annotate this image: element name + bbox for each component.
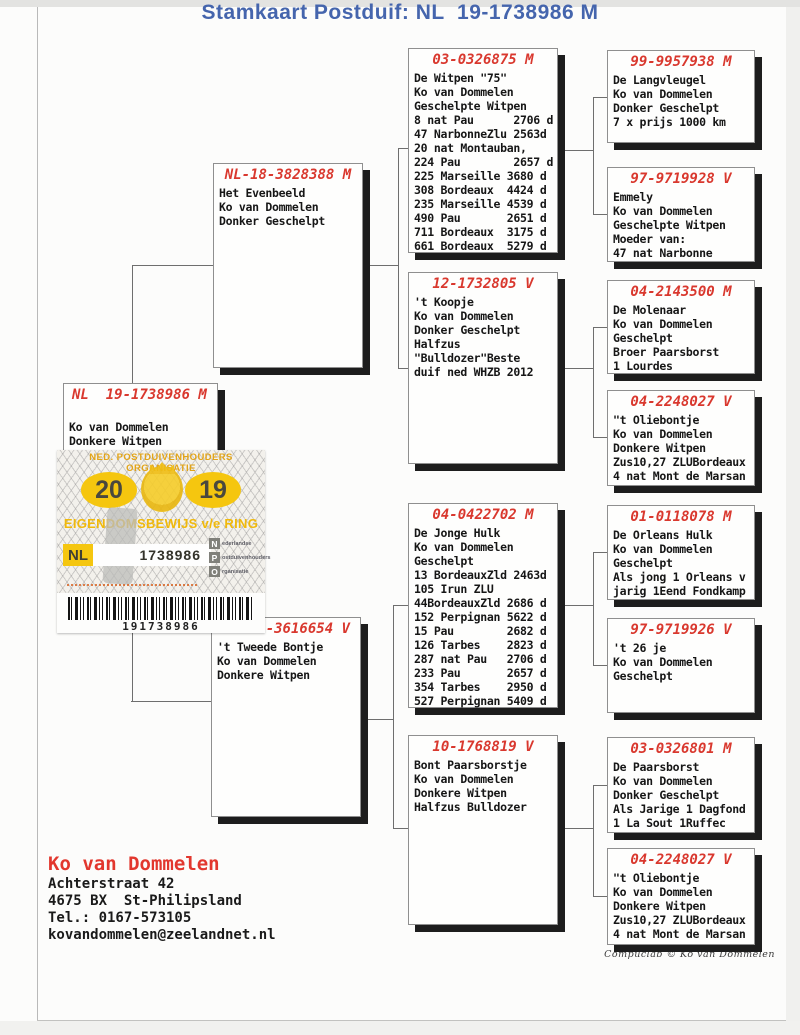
pedigree-box-grandparent: 03-0326875 M De Witpen "75" Ko van Domme… xyxy=(408,48,558,253)
barcode xyxy=(68,597,254,620)
pedigree-box-great-grandparent: 01-0118078 M De Orleans Hulk Ko van Domm… xyxy=(607,505,755,600)
npo-row: O rganisatie xyxy=(209,566,263,577)
sticker-year-right: 19 xyxy=(185,472,241,508)
country-code: NL xyxy=(63,544,93,566)
npo-letter-n: N xyxy=(209,538,220,549)
connector-line xyxy=(361,719,393,720)
sticker-fine-print-line xyxy=(67,584,197,586)
ring-number: 12-1732805 V xyxy=(409,273,557,293)
box-body: Bont Paarsborstje Ko van Dommelen Donker… xyxy=(409,756,557,814)
ring-number: NL 19-1738986 M xyxy=(64,384,217,404)
pedigree-box-great-grandparent: 97-9719926 V 't 26 je Ko van Dommelen Ge… xyxy=(607,618,755,713)
npo-row: N ederlandse xyxy=(209,538,263,549)
connector-line xyxy=(565,828,593,829)
scan-left-edge-line xyxy=(37,7,38,1020)
ring-number: 97-9719928 V xyxy=(608,168,754,188)
ring-number: 04-2143500 M xyxy=(608,281,754,301)
box-body: De Langvleugel Ko van Dommelen Donker Ge… xyxy=(608,71,754,129)
connector-line xyxy=(131,701,211,702)
connector-line xyxy=(565,368,593,369)
owner-name: Ko van Dommelen xyxy=(48,852,276,876)
npo-row: P ostduivenhouders xyxy=(209,552,263,563)
npo-letter-p: P xyxy=(209,552,220,563)
pedigree-box-great-grandparent: 04-2248027 V "t Oliebontje Ko van Dommel… xyxy=(607,848,755,945)
connector-line xyxy=(393,605,408,606)
barcode-number: 191738986 xyxy=(57,620,265,633)
connector-line xyxy=(593,665,607,666)
connector-line xyxy=(133,265,213,266)
connector-line xyxy=(593,896,607,897)
connector-line xyxy=(565,150,593,151)
connector-line xyxy=(393,828,408,829)
npo-word: rganisatie xyxy=(222,569,248,575)
ring-number: 04-2248027 V xyxy=(608,391,754,411)
pedigree-box-great-grandparent: 04-2143500 M De Molenaar Ko van Dommelen… xyxy=(607,280,755,374)
connector-line xyxy=(593,785,607,786)
scan-bottom-margin xyxy=(0,1021,800,1035)
connector-line xyxy=(593,97,607,98)
box-body: De Jonge Hulk Ko van Dommelen Geschelpt … xyxy=(409,524,557,708)
connector-line xyxy=(565,605,593,606)
ring-number: 04-0422702 M xyxy=(409,504,557,524)
ring-number: 03-0326875 M xyxy=(409,49,557,69)
connector-line xyxy=(593,327,607,328)
ring-number: 04-2248027 V xyxy=(608,849,754,869)
npo-acronym-block: N ederlandse P ostduivenhouders O rganis… xyxy=(209,538,263,580)
connector-line xyxy=(593,327,594,437)
page-title: Stamkaart Postduif: NL 19-1738986 M xyxy=(0,1,800,25)
sticker-year-left: 20 xyxy=(81,472,137,508)
connector-line xyxy=(398,148,399,368)
ring-number: 10-1768819 V xyxy=(409,736,557,756)
connector-line xyxy=(593,97,594,214)
connector-line xyxy=(398,148,408,149)
box-body: Ko van Dommelen Donkere Witpen xyxy=(64,404,217,448)
pedigree-box-father: NL-18-3828388 M Het Evenbeeld Ko van Dom… xyxy=(213,163,363,368)
connector-line xyxy=(593,552,594,665)
box-body: 't Koopje Ko van Dommelen Donker Geschel… xyxy=(409,293,557,379)
pedigree-box-mother: -3616654 V 't Tweede Bontje Ko van Domme… xyxy=(211,617,361,817)
box-body: De Paarsborst Ko van Dommelen Donker Ges… xyxy=(608,758,754,830)
npo-word: ostduivenhouders xyxy=(222,555,270,561)
scan-right-margin xyxy=(786,7,800,1021)
box-body: Emmely Ko van Dommelen Geschelpte Witpen… xyxy=(608,188,754,260)
box-body: 't Tweede Bontje Ko van Dommelen Donkere… xyxy=(212,638,360,682)
box-body: 't 26 je Ko van Dommelen Geschelpt xyxy=(608,639,754,683)
pedigree-box-great-grandparent: 03-0326801 M De Paarsborst Ko van Dommel… xyxy=(607,737,755,833)
owner-address: Achterstraat 42 4675 BX St-Philipsland T… xyxy=(48,876,276,944)
barcode-strip: 191738986 xyxy=(57,593,265,633)
ring-number-field: 1738986 xyxy=(93,544,211,566)
ring-number: 99-9957938 M xyxy=(608,51,754,71)
box-body: Het Evenbeeld Ko van Dommelen Donker Ges… xyxy=(214,184,362,228)
ring-number: 01-0118078 M xyxy=(608,506,754,526)
connector-line xyxy=(593,437,607,438)
pedigree-box-great-grandparent: 99-9957938 M De Langvleugel Ko van Domme… xyxy=(607,50,755,143)
ring-id-row: NL 1738986 xyxy=(63,544,213,566)
owner-block: Ko van Dommelen Achterstraat 42 4675 BX … xyxy=(48,852,276,944)
ownership-sticker: NED. POSTDUIVENHOUDERS ORGANISATIE 20 19… xyxy=(57,450,265,633)
box-body: De Orleans Hulk Ko van Dommelen Geschelp… xyxy=(608,526,754,598)
connector-line xyxy=(593,552,607,553)
pedigree-box-great-grandparent: 04-2248027 V "t Oliebontje Ko van Dommel… xyxy=(607,390,755,486)
ring-number: 03-0326801 M xyxy=(608,738,754,758)
connector-line xyxy=(593,785,594,896)
connector-line xyxy=(363,265,398,266)
sticker-mesh-background: NED. POSTDUIVENHOUDERS ORGANISATIE 20 19… xyxy=(57,450,265,593)
npo-letter-o: O xyxy=(209,566,220,577)
box-body: "t Oliebontje Ko van Dommelen Donkere Wi… xyxy=(608,869,754,941)
pedigree-box-grandparent: 12-1732805 V 't Koopje Ko van Dommelen D… xyxy=(408,272,558,464)
pedigree-box-grandparent: 04-0422702 M De Jonge Hulk Ko van Dommel… xyxy=(408,503,558,708)
pedigree-box-grandparent: 10-1768819 V Bont Paarsborstje Ko van Do… xyxy=(408,735,558,925)
connector-line xyxy=(393,605,394,828)
scanned-pedigree-page: Stamkaart Postduif: NL 19-1738986 M NL 1… xyxy=(0,0,800,1035)
pedigree-box-great-grandparent: 97-9719928 V Emmely Ko van Dommelen Gesc… xyxy=(607,167,755,262)
ring-number: 97-9719926 V xyxy=(608,619,754,639)
sticker-title: EIGENDOMSBEWIJS v/e RING xyxy=(57,516,265,531)
npo-crest-icon xyxy=(141,466,183,512)
box-body: "t Oliebontje Ko van Dommelen Donkere Wi… xyxy=(608,411,754,483)
connector-line xyxy=(593,214,607,215)
npo-word: ederlandse xyxy=(222,541,252,547)
credit-line: Compuclab © Ko van Dommelen xyxy=(573,949,775,960)
ring-number: NL-18-3828388 M xyxy=(214,164,362,184)
box-body: De Witpen "75" Ko van Dommelen Geschelpt… xyxy=(409,69,557,253)
box-body: De Molenaar Ko van Dommelen Geschelpt Br… xyxy=(608,301,754,373)
connector-line xyxy=(398,368,408,369)
